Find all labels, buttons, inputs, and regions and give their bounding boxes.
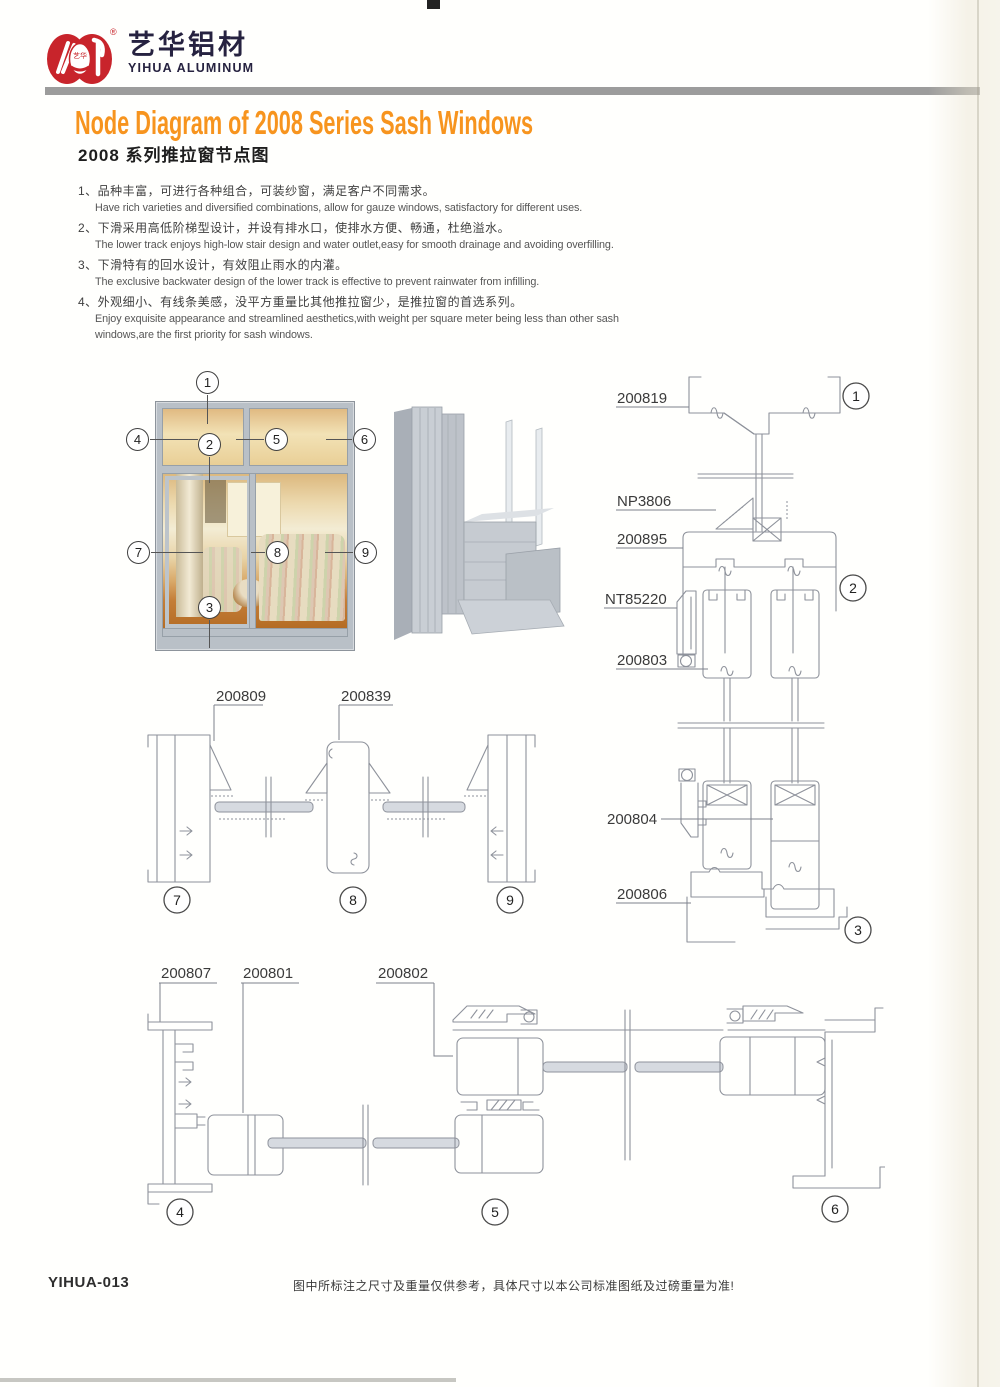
part-label-200806: 200806 xyxy=(617,886,667,903)
svg-text:8: 8 xyxy=(349,892,357,908)
feature-2-en: The lower track enjoys high-low stair de… xyxy=(95,237,698,253)
feature-1-zh: 1、品种丰富，可进行各种组合，可装纱窗，满足客户不同需求。 xyxy=(78,183,698,200)
node-marker-9: 9 xyxy=(497,887,523,913)
feature-4-zh: 4、外观细小、有线条美感，没平方重量比其他推拉窗少，是推拉窗的首选系列。 xyxy=(78,294,698,311)
logo-seal-text: 艺华 xyxy=(73,51,87,60)
part-label-NP3806: NP3806 xyxy=(617,493,671,510)
node-marker-8: 8 xyxy=(340,887,366,913)
window-callout-2: 2 xyxy=(198,433,221,456)
part-label-200801: 200801 xyxy=(243,965,293,982)
callout-leader-6 xyxy=(326,439,352,440)
callout-leader-1 xyxy=(207,395,208,424)
transom-pane-right xyxy=(249,408,348,466)
window-callout-4: 4 xyxy=(126,428,149,451)
registered-mark: ® xyxy=(110,27,117,37)
node-marker-1: 1 xyxy=(843,383,869,409)
meeting-stile xyxy=(249,474,256,636)
svg-text:9: 9 xyxy=(506,892,514,908)
window-callout-9: 9 xyxy=(354,541,377,564)
svg-text:7: 7 xyxy=(173,892,181,908)
part-label-200895: 200895 xyxy=(617,531,667,548)
callout-leader-4 xyxy=(150,439,198,440)
window-callout-3: 3 xyxy=(198,596,221,619)
part-label-200819: 200819 xyxy=(617,390,667,407)
feature-3-zh: 3、下滑特有的回水设计，有效阻止雨水的内灌。 xyxy=(78,257,698,274)
feature-4-en-cont: windows,are the first priority for sash … xyxy=(95,327,698,343)
node-marker-4: 4 xyxy=(167,1199,193,1225)
bottom-horizontal-section-diagram: 200807 200801 200802 xyxy=(135,960,885,1228)
page-title-en: Node Diagram of 2008 Series Sash Windows xyxy=(75,104,533,143)
callout-leader-7 xyxy=(151,552,203,553)
node-marker-6: 6 xyxy=(822,1196,848,1222)
svg-text:6: 6 xyxy=(831,1201,839,1217)
part-label-200839: 200839 xyxy=(341,688,391,705)
window-callout-5: 5 xyxy=(265,428,288,451)
callout-leader-3 xyxy=(209,620,210,648)
part-label-NT85220: NT85220 xyxy=(605,591,667,608)
node-marker-5: 5 xyxy=(482,1199,508,1225)
part-label-200807: 200807 xyxy=(161,965,211,982)
feature-list: 1、品种丰富，可进行各种组合，可装纱窗，满足客户不同需求。 Have rich … xyxy=(78,183,698,347)
transom-rail xyxy=(162,466,348,473)
node-marker-3: 3 xyxy=(845,917,871,943)
profile-corner-photo xyxy=(388,404,573,652)
svg-text:5: 5 xyxy=(491,1204,499,1220)
callout-leader-9 xyxy=(325,552,353,553)
scan-edge-strip xyxy=(928,0,1000,1387)
feature-3-en: The exclusive backwater design of the lo… xyxy=(95,274,698,290)
yihua-logo-icon: 艺华 ® xyxy=(46,26,120,88)
brand-name-en: YIHUA ALUMINUM xyxy=(128,61,254,75)
scan-edge-line xyxy=(977,0,979,1387)
vertical-section-diagram: 200819 NP3806 200895 NT85220 200803 2008… xyxy=(603,371,885,956)
window-callout-7: 7 xyxy=(127,541,150,564)
callout-leader-8 xyxy=(251,552,265,553)
catalog-page: 艺华 ® 艺华铝材 YIHUA ALUMINUM Node Diagram of… xyxy=(0,0,1000,1387)
brand-name-zh: 艺华铝材 xyxy=(128,30,254,60)
feature-2-zh: 2、下滑采用高低阶梯型设计，并设有排水口，使排水方便、畅通，杜绝溢水。 xyxy=(78,220,698,237)
part-label-200809: 200809 xyxy=(216,688,266,705)
callout-leader-2 xyxy=(209,457,210,483)
window-main-area xyxy=(162,473,348,637)
window-callout-1: 1 xyxy=(196,371,219,394)
bottom-track xyxy=(163,628,347,636)
feature-1-en: Have rich varieties and diversified comb… xyxy=(95,200,698,216)
part-label-200802: 200802 xyxy=(378,965,428,982)
window-callout-6: 6 xyxy=(353,428,376,451)
scan-mark-top xyxy=(427,0,440,9)
node-marker-2: 2 xyxy=(840,575,866,601)
scan-mark-bottom xyxy=(0,1378,456,1382)
part-label-200803: 200803 xyxy=(617,652,667,669)
svg-text:1: 1 xyxy=(852,388,860,404)
svg-text:4: 4 xyxy=(176,1204,184,1220)
window-transom xyxy=(162,408,348,466)
node-marker-7: 7 xyxy=(164,887,190,913)
brand-logo: 艺华 ® 艺华铝材 YIHUA ALUMINUM xyxy=(46,26,254,88)
svg-text:3: 3 xyxy=(854,922,862,938)
window-callout-8: 8 xyxy=(266,541,289,564)
page-title-zh: 2008 系列推拉窗节点图 xyxy=(78,141,270,166)
header-divider xyxy=(45,87,980,95)
mid-horizontal-section-diagram: 200809 200839 xyxy=(135,683,555,921)
footer-disclaimer: 图中所标注之尺寸及重量仅供参考，具体尺寸以本公司标准图纸及过磅重量为准! xyxy=(293,1277,734,1294)
callout-leader-5 xyxy=(236,439,264,440)
feature-4-en: Enjoy exquisite appearance and streamlin… xyxy=(95,311,698,327)
part-label-200804: 200804 xyxy=(607,811,657,828)
page-code: YIHUA-013 xyxy=(48,1274,129,1291)
svg-text:2: 2 xyxy=(849,580,857,596)
